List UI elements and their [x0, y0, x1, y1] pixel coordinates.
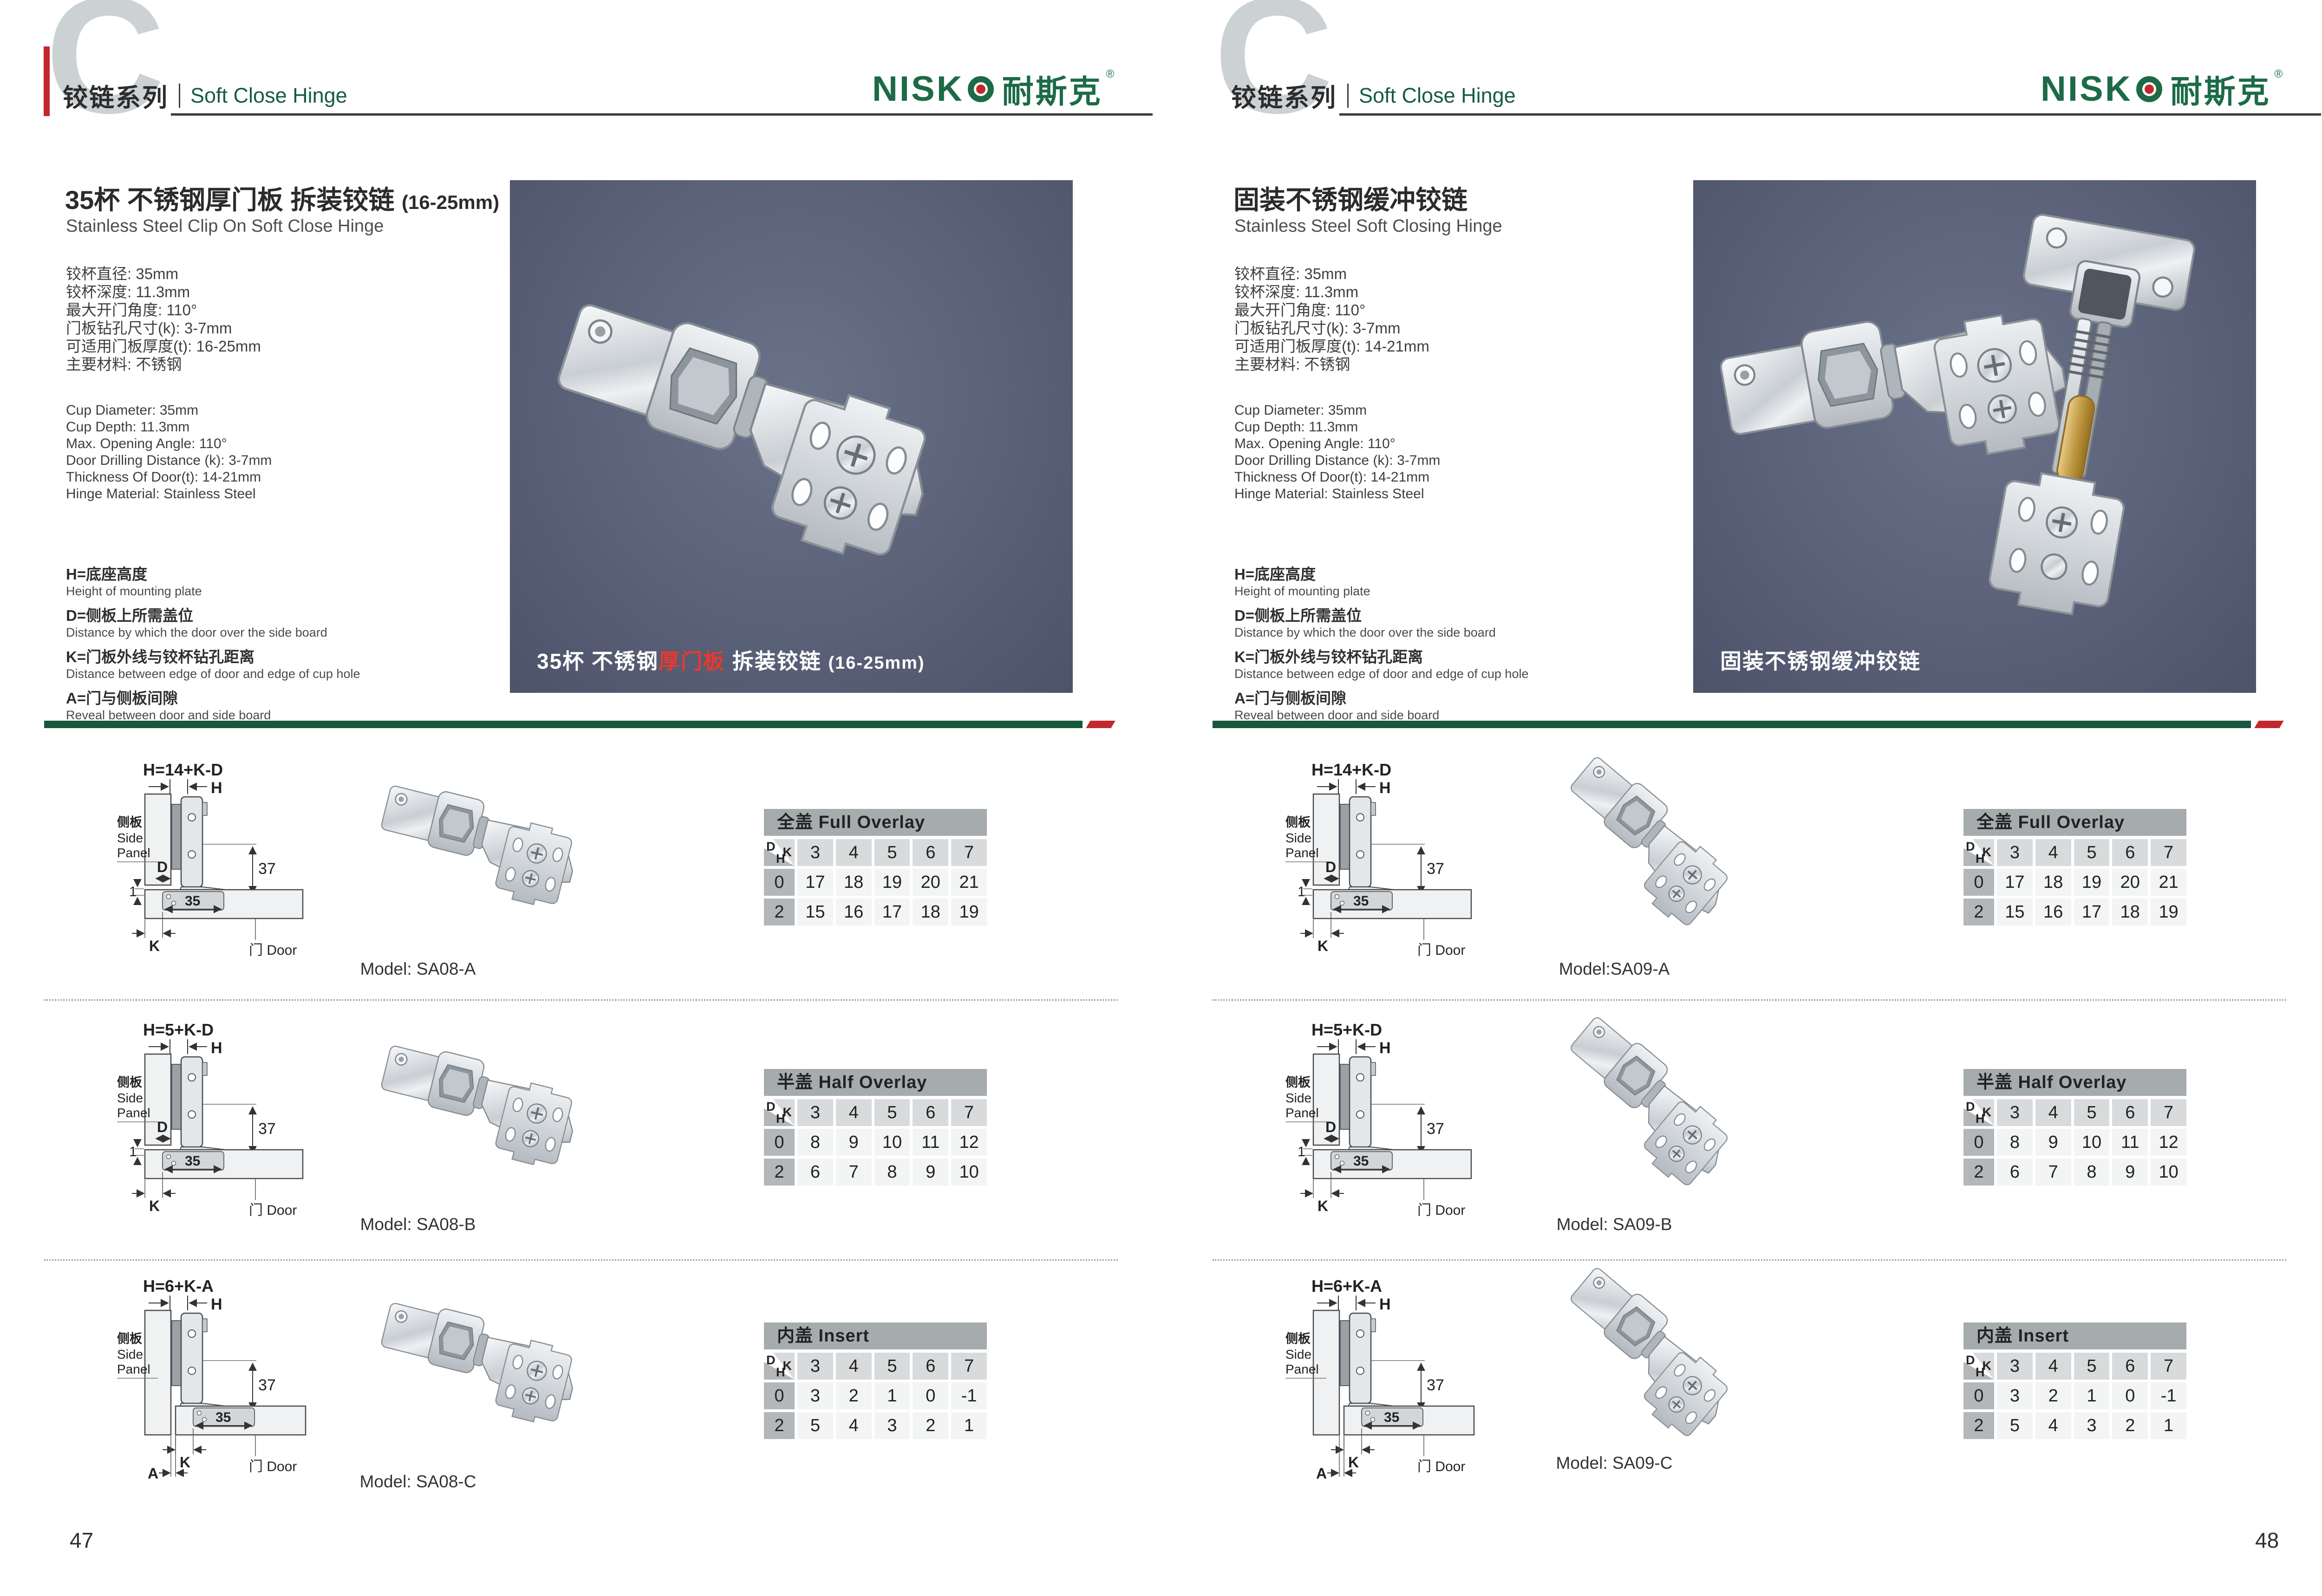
value-cell: 11 — [2112, 1129, 2148, 1156]
legend-cn: D=侧板上所需盖位 — [66, 606, 360, 625]
section-divider — [1213, 721, 2286, 728]
value-cell: 12 — [951, 1129, 987, 1156]
hinge-diagram: H=14+K-DH侧板SidePanel37D135K门 Door — [1285, 756, 1507, 970]
h-row-header: 0 — [1963, 869, 1994, 896]
corner-label-d: D — [766, 1100, 776, 1114]
spec-line: Max. Opening Angle: 110° — [66, 436, 272, 452]
legend-en: Height of mounting plate — [66, 584, 360, 599]
series-title-cn: 铰链系列 — [1231, 77, 1337, 114]
hinge-illustration — [1545, 999, 1833, 1204]
table-grid: DKH345670171819202121516171819 — [764, 839, 987, 925]
table-title: 全盖 Full Overlay — [1963, 809, 2186, 836]
h-row-header: 2 — [764, 1159, 795, 1186]
k-col-header: 4 — [2035, 1353, 2071, 1380]
legend: H=底座高度Height of mounting plateD=侧板上所需盖位D… — [1234, 565, 1528, 730]
header-divider — [1347, 84, 1349, 108]
value-cell: 21 — [2151, 869, 2186, 896]
k-col-header: 5 — [2074, 839, 2110, 866]
spec-line: 主要材料: 不锈钢 — [66, 355, 261, 373]
side-panel-label-en2: Panel — [117, 846, 150, 860]
hinge-diagram: H=5+K-DH侧板SidePanel37D135K门 Door — [116, 1016, 339, 1230]
corner-label-d: D — [1966, 840, 1975, 854]
header-rule — [171, 113, 1153, 116]
section-divider — [44, 721, 1118, 728]
model-photo — [367, 1257, 655, 1463]
k-col-header: 6 — [913, 1099, 948, 1126]
value-cell: 0 — [2112, 1382, 2148, 1409]
legend-cn: A=门与侧板间隙 — [66, 689, 360, 708]
diagram-formula: H=5+K-D — [143, 1020, 214, 1039]
value-cell: 21 — [951, 869, 987, 896]
value-cell: 19 — [2074, 869, 2110, 896]
value-cell: 2 — [2112, 1412, 2148, 1439]
specs-cn: 铰杯直径: 35mm铰杯深度: 11.3mm最大开门角度: 110°门板钻孔尺寸… — [66, 265, 261, 373]
spec-line: Door Drilling Distance (k): 3-7mm — [66, 452, 272, 469]
spec-line: Hinge Material: Stainless Steel — [1234, 486, 1440, 502]
h-row-header: 2 — [1963, 899, 1994, 925]
header-rule — [1339, 113, 2321, 116]
h-row-header: 0 — [1963, 1382, 1994, 1409]
value-cell: 20 — [2112, 869, 2148, 896]
side-panel-label-cn: 侧板 — [1285, 1075, 1311, 1089]
model-label: Model: SA08-A — [297, 959, 539, 979]
spec-line: 可适用门板厚度(t): 16-25mm — [66, 337, 261, 355]
k-col-header: 6 — [913, 1353, 948, 1380]
series-title-en: Soft Close Hinge — [190, 84, 347, 108]
divider-red-bar — [1086, 721, 1115, 728]
value-cell: 16 — [2035, 899, 2071, 925]
value-cell: 10 — [2151, 1159, 2186, 1186]
k-col-header: 7 — [2151, 839, 2186, 866]
catalog-spread: C 铰链系列 Soft Close Hinge NISK 耐斯克 ® 35杯 不… — [0, 0, 2322, 1596]
value-cell: 3 — [797, 1382, 833, 1409]
value-cell: 16 — [836, 899, 872, 925]
dim-1: 1 — [1298, 1144, 1305, 1160]
product-title-en: Stainless Steel Soft Closing Hinge — [1234, 216, 1502, 236]
value-cell: 0 — [913, 1382, 948, 1409]
spec-line: 铰杯深度: 11.3mm — [1234, 283, 1429, 301]
value-cell: 15 — [1997, 899, 2033, 925]
spec-line: Cup Diameter: 35mm — [66, 402, 272, 419]
header-divider — [179, 84, 180, 108]
spec-line: 铰杯直径: 35mm — [1234, 265, 1429, 283]
dim-37: 37 — [258, 860, 276, 878]
k-col-header: 4 — [836, 839, 872, 866]
dim-35: 35 — [1384, 1410, 1399, 1425]
dim-h: H — [1379, 779, 1391, 797]
dim-35: 35 — [1353, 1153, 1369, 1169]
value-cell: 3 — [1997, 1382, 2033, 1409]
installation-diagram: H=6+K-AH侧板SidePanel3735KA门 Door — [1285, 1272, 1507, 1486]
value-cell: 5 — [797, 1412, 833, 1439]
logo-latin-text: NISK — [2041, 69, 2133, 109]
value-cell: 17 — [797, 869, 833, 896]
page-48: C 铰链系列 Soft Close Hinge NISK 耐斯克 ® 固装不锈钢… — [1168, 0, 2322, 1596]
spec-line: 门板钻孔尺寸(k): 3-7mm — [1234, 319, 1429, 337]
door-label: 门 Door — [1417, 1459, 1465, 1474]
value-cell: 6 — [797, 1159, 833, 1186]
corner-label-h: H — [776, 1112, 785, 1126]
dim-h: H — [211, 1296, 222, 1313]
dim-35: 35 — [185, 893, 200, 909]
h-row-header: 0 — [764, 1129, 795, 1156]
side-panel-label-cn: 侧板 — [1285, 1332, 1311, 1346]
k-col-header: 3 — [797, 839, 833, 866]
legend-item: K=门板外线与铰杯钻孔距离Distance between edge of do… — [66, 647, 360, 682]
legend-item: K=门板外线与铰杯钻孔距离Distance between edge of do… — [1234, 647, 1528, 682]
logo-latin-text: NISK — [872, 69, 964, 109]
logo-cn-text: 耐斯克 — [2171, 66, 2271, 112]
spec-line: Cup Depth: 11.3mm — [1234, 419, 1440, 436]
k-col-header: 5 — [874, 1353, 910, 1380]
dim-35: 35 — [1353, 893, 1369, 909]
installation-diagram: H=6+K-AH侧板SidePanel3735KA门 Door — [116, 1272, 339, 1486]
hinge-diagram: H=6+K-AH侧板SidePanel3735KA门 Door — [1285, 1272, 1507, 1486]
spec-line: 门板钻孔尺寸(k): 3-7mm — [66, 319, 261, 337]
dim-37: 37 — [258, 1120, 276, 1138]
full-overlay-table: 全盖 Full OverlayDKH3456701718192021215161… — [1963, 809, 2186, 925]
value-cell: 11 — [913, 1129, 948, 1156]
corner-label-h: H — [776, 852, 785, 866]
value-cell: 5 — [1997, 1412, 2033, 1439]
dim-k: K — [1318, 1198, 1328, 1214]
hinge-diagram: H=6+K-AH侧板SidePanel3735KA门 Door — [116, 1272, 339, 1486]
dim-35: 35 — [185, 1153, 200, 1169]
dim-k: K — [149, 938, 160, 954]
product-photo: 固装不锈钢缓冲铰链 — [1693, 180, 2256, 693]
registered-mark: ® — [2275, 68, 2283, 81]
value-cell: 1 — [874, 1382, 910, 1409]
photo-caption: 35杯 不锈钢厚门板 拆装铰链 (16-25mm) — [537, 645, 925, 675]
spec-line: Cup Diameter: 35mm — [1234, 402, 1440, 419]
value-cell: 18 — [836, 869, 872, 896]
value-cell: 19 — [2151, 899, 2186, 925]
k-col-header: 4 — [836, 1353, 872, 1380]
table-title: 内盖 Insert — [1963, 1322, 2186, 1349]
section-letter: C — [46, 0, 165, 138]
legend-cn: K=门板外线与铰杯钻孔距离 — [1234, 647, 1528, 666]
side-panel-label-en2: Panel — [117, 1362, 150, 1376]
hinge-illustration — [1545, 739, 1833, 944]
model-photo — [367, 739, 655, 946]
dim-k: K — [1318, 938, 1328, 954]
page-47: C 铰链系列 Soft Close Hinge NISK 耐斯克 ® 35杯 不… — [0, 0, 1168, 1596]
diagram-formula: H=6+K-A — [143, 1277, 214, 1296]
value-cell: 4 — [2035, 1412, 2071, 1439]
model-label: Model: SA08-B — [297, 1215, 539, 1234]
dim-37: 37 — [258, 1376, 276, 1394]
model-label: Model: SA09-B — [1494, 1215, 1735, 1234]
model-label: Model:SA09-A — [1494, 959, 1735, 979]
half-overlay-table: 半盖 Half OverlayDKH345670891011122678910 — [1963, 1069, 2186, 1186]
k-col-header: 6 — [2112, 839, 2148, 866]
value-cell: 8 — [797, 1129, 833, 1156]
diagram-formula: H=14+K-D — [1311, 760, 1391, 779]
dim-1: 1 — [129, 884, 137, 899]
table-corner-cell: DKH — [1963, 1099, 1994, 1126]
value-cell: 19 — [874, 869, 910, 896]
legend-en: Distance between edge of door and edge o… — [1234, 666, 1528, 682]
legend-item: H=底座高度Height of mounting plate — [66, 565, 360, 599]
dim-37: 37 — [1427, 1376, 1444, 1394]
spec-line: Door Drilling Distance (k): 3-7mm — [1234, 452, 1440, 469]
value-cell: 17 — [874, 899, 910, 925]
h-row-header: 2 — [764, 1412, 795, 1439]
spec-line: 最大开门角度: 110° — [66, 301, 261, 319]
value-cell: -1 — [2151, 1382, 2186, 1409]
value-cell: 6 — [1997, 1159, 2033, 1186]
k-col-header: 4 — [836, 1099, 872, 1126]
dim-h: H — [211, 779, 222, 797]
value-cell: 9 — [2112, 1159, 2148, 1186]
side-panel-label-en1: Side — [117, 831, 143, 845]
spec-line: Thickness Of Door(t): 14-21mm — [1234, 469, 1440, 486]
legend-item: A=门与侧板间隙Reveal between door and side boa… — [66, 689, 360, 723]
value-cell: 18 — [2112, 899, 2148, 925]
hinge-photo-illustration — [510, 180, 1073, 693]
door-label: 门 Door — [249, 1203, 297, 1218]
spec-line: 铰杯深度: 11.3mm — [66, 283, 261, 301]
table-title: 半盖 Half Overlay — [1963, 1069, 2186, 1096]
value-cell: 17 — [2074, 899, 2110, 925]
spec-line: 最大开门角度: 110° — [1234, 301, 1429, 319]
door-label: 门 Door — [1417, 1203, 1465, 1218]
divider-red-bar — [2254, 721, 2283, 728]
value-cell: 10 — [951, 1159, 987, 1186]
dim-a: A — [1316, 1465, 1327, 1482]
h-row-header: 0 — [764, 869, 795, 896]
side-panel-label-en1: Side — [1285, 831, 1311, 845]
corner-label-h: H — [1976, 1365, 1985, 1380]
table-grid: DKH3456703210-1254321 — [1963, 1353, 2186, 1439]
dim-d: D — [1325, 1119, 1336, 1135]
side-panel-label-cn: 侧板 — [117, 1075, 142, 1089]
spec-line: Thickness Of Door(t): 14-21mm — [66, 469, 272, 486]
h-row-header: 2 — [1963, 1412, 1994, 1439]
table-corner-cell: DKH — [1963, 839, 1994, 866]
side-panel-label-en2: Panel — [1285, 1106, 1319, 1120]
specs-en: Cup Diameter: 35mmCup Depth: 11.3mmMax. … — [66, 402, 272, 502]
table-grid: DKH3456703210-1254321 — [764, 1353, 987, 1439]
legend-en: Distance by which the door over the side… — [66, 625, 360, 640]
value-cell: 9 — [836, 1129, 872, 1156]
hinge-illustration — [1545, 1250, 1833, 1454]
dim-d: D — [1325, 859, 1336, 875]
insert-table: 内盖 InsertDKH3456703210-1254321 — [764, 1322, 987, 1439]
caption-segment: 拆装铰链 — [725, 649, 828, 673]
logo-target-icon — [2136, 76, 2162, 102]
specs-en: Cup Diameter: 35mmCup Depth: 11.3mmMax. … — [1234, 402, 1440, 502]
k-col-header: 5 — [2074, 1099, 2110, 1126]
k-col-header: 4 — [2035, 839, 2071, 866]
value-cell: 10 — [874, 1129, 910, 1156]
value-cell: 17 — [1997, 869, 2033, 896]
k-col-header: 6 — [2112, 1353, 2148, 1380]
spec-line: 主要材料: 不锈钢 — [1234, 355, 1429, 373]
value-cell: 20 — [913, 869, 948, 896]
product-title-main: 35杯 不锈钢厚门板 拆装铰链 — [65, 185, 394, 215]
product-title-en: Stainless Steel Clip On Soft Close Hinge — [66, 216, 384, 236]
legend-en: Distance between edge of door and edge o… — [66, 666, 360, 682]
dim-35: 35 — [215, 1410, 231, 1425]
page-header: 铰链系列 Soft Close Hinge — [1231, 77, 1516, 114]
legend-cn: A=门与侧板间隙 — [1234, 689, 1528, 708]
spec-line: Max. Opening Angle: 110° — [1234, 436, 1440, 452]
dim-k: K — [149, 1198, 160, 1214]
value-cell: 8 — [874, 1159, 910, 1186]
table-title: 半盖 Half Overlay — [764, 1069, 987, 1096]
spec-line: Cup Depth: 11.3mm — [66, 419, 272, 436]
corner-label-h: H — [1976, 852, 1985, 866]
dim-h: H — [1379, 1296, 1391, 1313]
value-cell: 1 — [2074, 1382, 2110, 1409]
k-col-header: 3 — [797, 1353, 833, 1380]
page-header: 铰链系列 Soft Close Hinge — [63, 77, 347, 114]
caption-segment: 厚门板 — [659, 649, 725, 673]
caption-segment: 固装不锈钢缓冲铰链 — [1720, 649, 1921, 673]
value-cell: 10 — [2074, 1129, 2110, 1156]
insert-table: 内盖 InsertDKH3456703210-1254321 — [1963, 1322, 2186, 1439]
spec-line: 可适用门板厚度(t): 14-21mm — [1234, 337, 1429, 355]
value-cell: 12 — [2151, 1129, 2186, 1156]
table-title: 内盖 Insert — [764, 1322, 987, 1349]
divider-green-bar — [1213, 721, 2251, 728]
product-title-cn: 固装不锈钢缓冲铰链 — [1233, 179, 1468, 217]
corner-label-h: H — [1976, 1112, 1985, 1126]
product-photo: 35杯 不锈钢厚门板 拆装铰链 (16-25mm) — [510, 180, 1073, 693]
full-overlay-table: 全盖 Full OverlayDKH3456701718192021215161… — [764, 809, 987, 925]
side-panel-label-en2: Panel — [1285, 846, 1319, 860]
series-title-en: Soft Close Hinge — [1359, 84, 1516, 108]
k-col-header: 7 — [951, 1353, 987, 1380]
k-col-header: 7 — [951, 839, 987, 866]
k-col-header: 7 — [2151, 1099, 2186, 1126]
value-cell: 15 — [797, 899, 833, 925]
h-row-header: 0 — [1963, 1129, 1994, 1156]
model-photo — [1545, 1250, 1833, 1457]
value-cell: 1 — [2151, 1412, 2186, 1439]
dim-h: H — [211, 1039, 222, 1057]
specs-cn: 铰杯直径: 35mm铰杯深度: 11.3mm最大开门角度: 110°门板钻孔尺寸… — [1234, 265, 1429, 373]
value-cell: 9 — [2035, 1129, 2071, 1156]
corner-label-d: D — [766, 1353, 776, 1368]
side-panel-label-en1: Side — [117, 1347, 143, 1361]
half-overlay-table: 半盖 Half OverlayDKH345670891011122678910 — [764, 1069, 987, 1186]
value-cell: 4 — [836, 1412, 872, 1439]
installation-diagram: H=14+K-DH侧板SidePanel37D135K门 Door — [1285, 756, 1507, 970]
dim-37: 37 — [1427, 1120, 1444, 1138]
spec-line: 铰杯直径: 35mm — [66, 265, 261, 283]
k-col-header: 3 — [1997, 1353, 2033, 1380]
legend-cn: K=门板外线与铰杯钻孔距离 — [66, 647, 360, 666]
hinge-illustration — [367, 999, 655, 1204]
photo-caption: 固装不锈钢缓冲铰链 — [1720, 645, 1921, 675]
door-label: 门 Door — [1417, 943, 1465, 958]
page-number: 48 — [2255, 1528, 2279, 1553]
product-title-cn: 35杯 不锈钢厚门板 拆装铰链 (16-25mm) — [65, 179, 499, 217]
k-col-header: 7 — [951, 1099, 987, 1126]
caption-segment: (16-25mm) — [828, 653, 925, 673]
divider-green-bar — [44, 721, 1083, 728]
hinge-illustration — [367, 1257, 655, 1461]
k-col-header: 6 — [913, 839, 948, 866]
caption-segment: 35杯 不锈钢 — [537, 649, 659, 673]
dim-37: 37 — [1427, 860, 1444, 878]
table-corner-cell: DKH — [764, 839, 795, 866]
dim-1: 1 — [129, 1144, 137, 1160]
door-label: 门 Door — [249, 1459, 297, 1474]
h-row-header: 2 — [764, 899, 795, 925]
k-col-header: 5 — [874, 839, 910, 866]
side-panel-label-cn: 侧板 — [117, 815, 142, 829]
legend: H=底座高度Height of mounting plateD=侧板上所需盖位D… — [66, 565, 360, 730]
dim-k: K — [1348, 1454, 1359, 1471]
side-panel-label-en1: Side — [117, 1091, 143, 1105]
value-cell: 1 — [951, 1412, 987, 1439]
corner-label-d: D — [1966, 1100, 1975, 1114]
value-cell: 8 — [1997, 1129, 2033, 1156]
side-panel-label-cn: 侧板 — [1285, 815, 1311, 829]
section-letter: C — [1214, 0, 1333, 138]
h-row-header: 2 — [1963, 1159, 1994, 1186]
corner-label-d: D — [766, 840, 776, 854]
table-corner-cell: DKH — [764, 1099, 795, 1126]
k-col-header: 6 — [2112, 1099, 2148, 1126]
page-number: 47 — [70, 1528, 93, 1553]
logo-cn-text: 耐斯克 — [1002, 66, 1102, 112]
installation-diagram: H=5+K-DH侧板SidePanel37D135K门 Door — [116, 1016, 339, 1230]
installation-diagram: H=14+K-DH侧板SidePanel37D135K门 Door — [116, 756, 339, 970]
table-grid: DKH345670891011122678910 — [764, 1099, 987, 1186]
legend-en: Height of mounting plate — [1234, 584, 1528, 599]
registered-mark: ® — [1106, 68, 1115, 81]
legend-item: H=底座高度Height of mounting plate — [1234, 565, 1528, 599]
h-row-header: 0 — [764, 1382, 795, 1409]
value-cell: 7 — [2035, 1159, 2071, 1186]
diagram-formula: H=6+K-A — [1311, 1277, 1382, 1296]
side-panel-label-en1: Side — [1285, 1347, 1311, 1361]
k-col-header: 3 — [797, 1099, 833, 1126]
hinge-diagram: H=5+K-DH侧板SidePanel37D135K门 Door — [1285, 1016, 1507, 1230]
diagram-formula: H=5+K-D — [1311, 1020, 1382, 1039]
door-label: 门 Door — [249, 943, 297, 958]
side-panel-label-en1: Side — [1285, 1091, 1311, 1105]
table-corner-cell: DKH — [764, 1353, 795, 1380]
model-photo — [367, 999, 655, 1206]
hinge-diagram: H=14+K-DH侧板SidePanel37D135K门 Door — [116, 756, 339, 970]
legend-cn: H=底座高度 — [1234, 565, 1528, 584]
k-col-header: 3 — [1997, 1099, 2033, 1126]
dim-k: K — [180, 1454, 190, 1471]
product-title-main: 固装不锈钢缓冲铰链 — [1233, 185, 1468, 215]
dim-1: 1 — [1298, 884, 1305, 899]
table-title: 全盖 Full Overlay — [764, 809, 987, 836]
dim-d: D — [157, 859, 168, 875]
value-cell: 9 — [913, 1159, 948, 1186]
corner-label-d: D — [1966, 1353, 1975, 1368]
value-cell: 3 — [2074, 1412, 2110, 1439]
k-col-header: 5 — [874, 1099, 910, 1126]
brand-logo: NISK 耐斯克 ® — [2041, 66, 2283, 112]
spec-line: Hinge Material: Stainless Steel — [66, 486, 272, 502]
model-label: Model: SA08-C — [297, 1472, 539, 1492]
table-grid: DKH345670891011122678910 — [1963, 1099, 2186, 1186]
hinge-photo-illustration — [1693, 180, 2256, 693]
logo-red-dot-icon — [2145, 85, 2154, 94]
value-cell: 18 — [913, 899, 948, 925]
series-title-cn: 铰链系列 — [63, 77, 169, 114]
dim-h: H — [1379, 1039, 1391, 1057]
